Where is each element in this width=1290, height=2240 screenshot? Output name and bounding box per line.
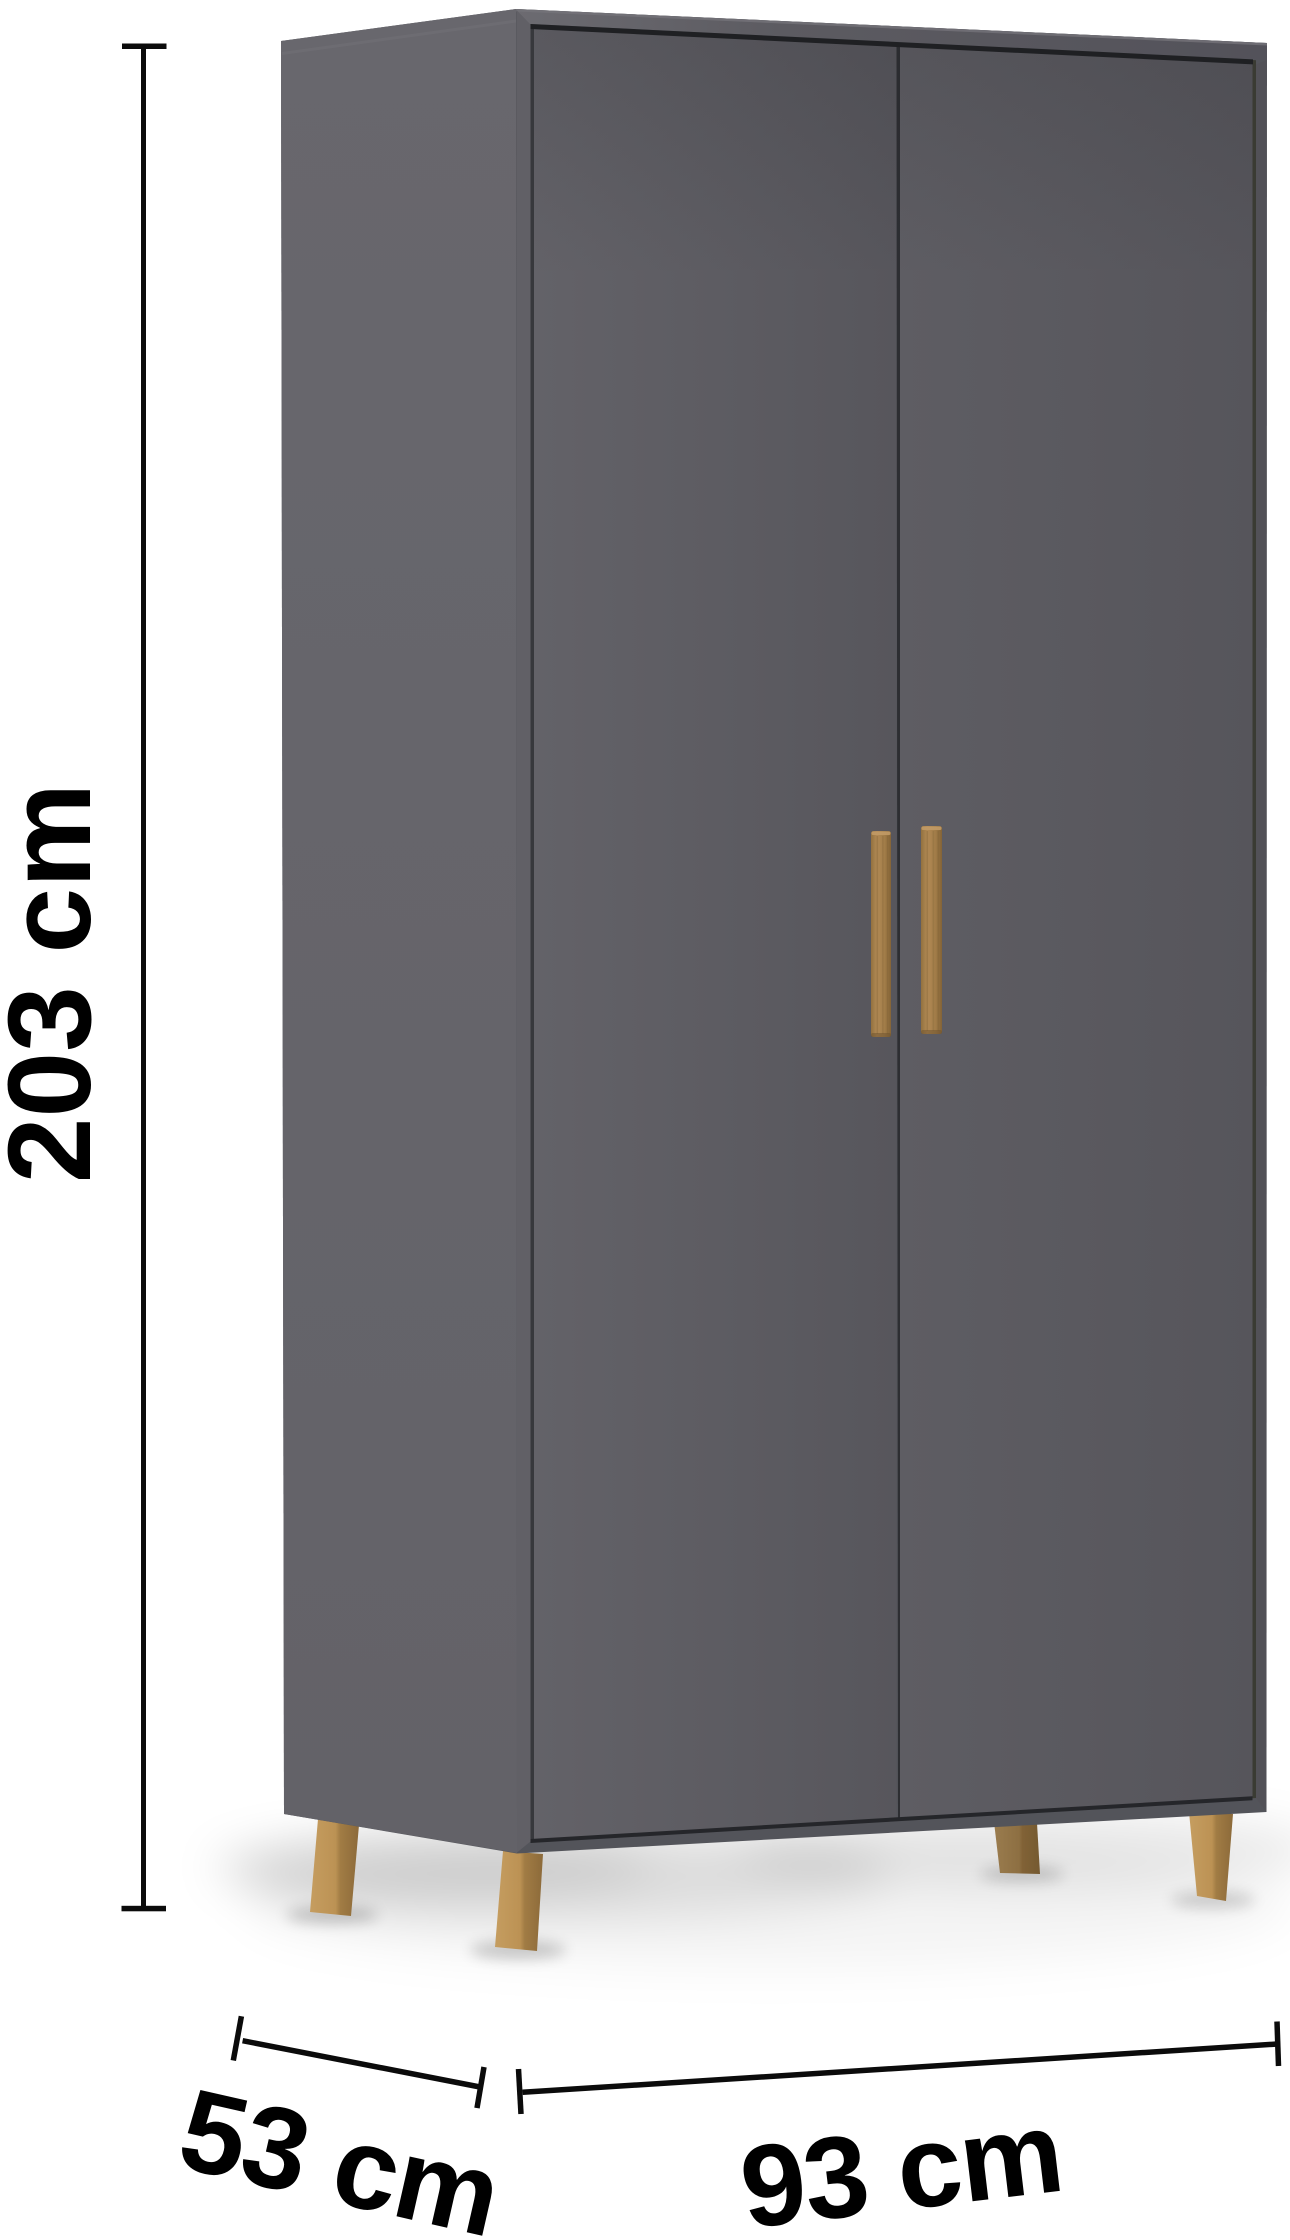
svg-text:93 cm: 93 cm — [734, 2086, 1069, 2240]
svg-text:53 cm: 53 cm — [169, 2063, 511, 2240]
svg-text:203 cm: 203 cm — [0, 783, 116, 1183]
